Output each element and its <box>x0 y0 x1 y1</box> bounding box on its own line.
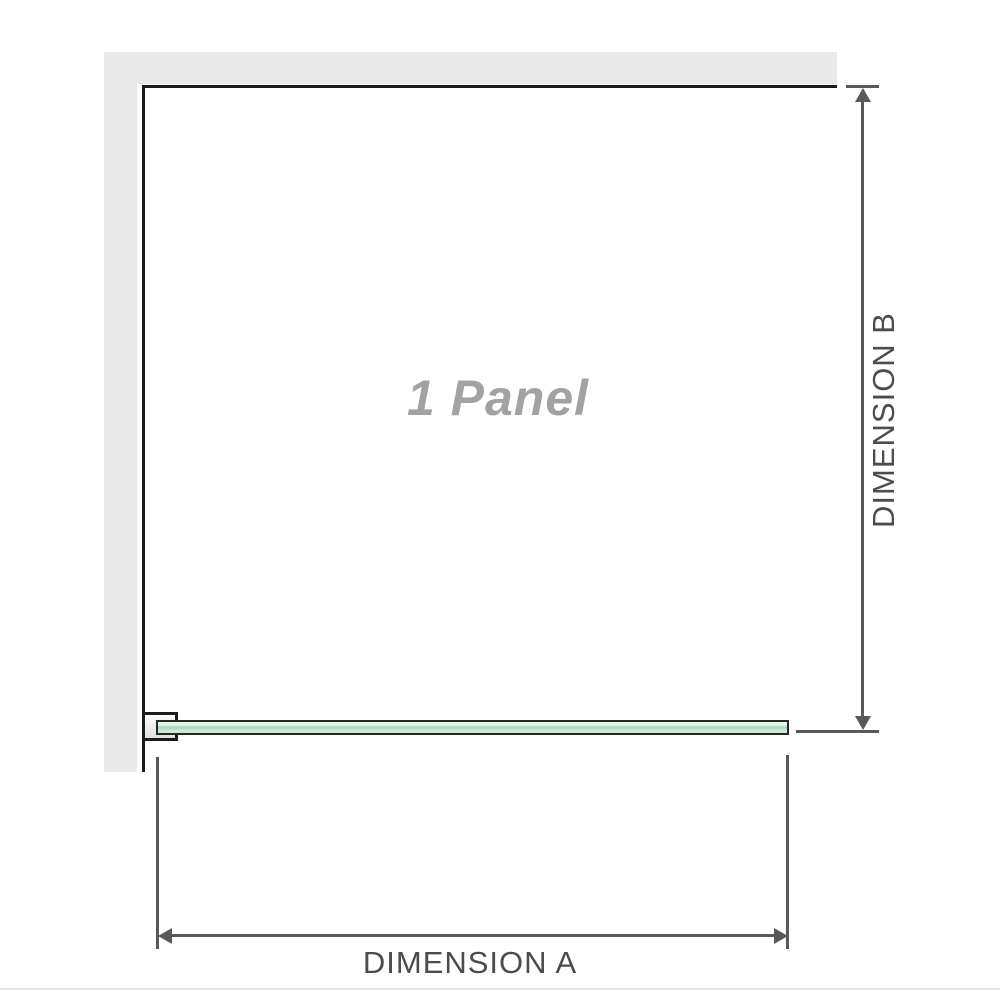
dimension-a-line <box>168 934 777 937</box>
enclosure-left-border <box>142 85 145 772</box>
dimension-b-label: DIMENSION B <box>866 312 902 528</box>
dimension-b-bottom-tick <box>796 730 879 733</box>
dimension-a-arrow-left-icon <box>158 928 172 944</box>
wall-top <box>104 52 837 84</box>
dimension-a-arrow-right-icon <box>774 928 788 944</box>
dimension-b-arrow-up-icon <box>855 88 871 102</box>
panel-count-label: 1 Panel <box>407 369 589 427</box>
dimension-b-line <box>861 96 864 723</box>
dimension-b-arrow-down-icon <box>855 716 871 730</box>
dimension-a-label: DIMENSION A <box>363 945 577 981</box>
enclosure-top-border <box>142 85 837 88</box>
bottom-divider-line <box>0 988 1000 990</box>
glass-panel <box>156 720 789 735</box>
wall-left <box>104 52 137 772</box>
dimension-a-right-tick <box>786 755 789 949</box>
dimension-a-left-tick <box>156 757 159 949</box>
